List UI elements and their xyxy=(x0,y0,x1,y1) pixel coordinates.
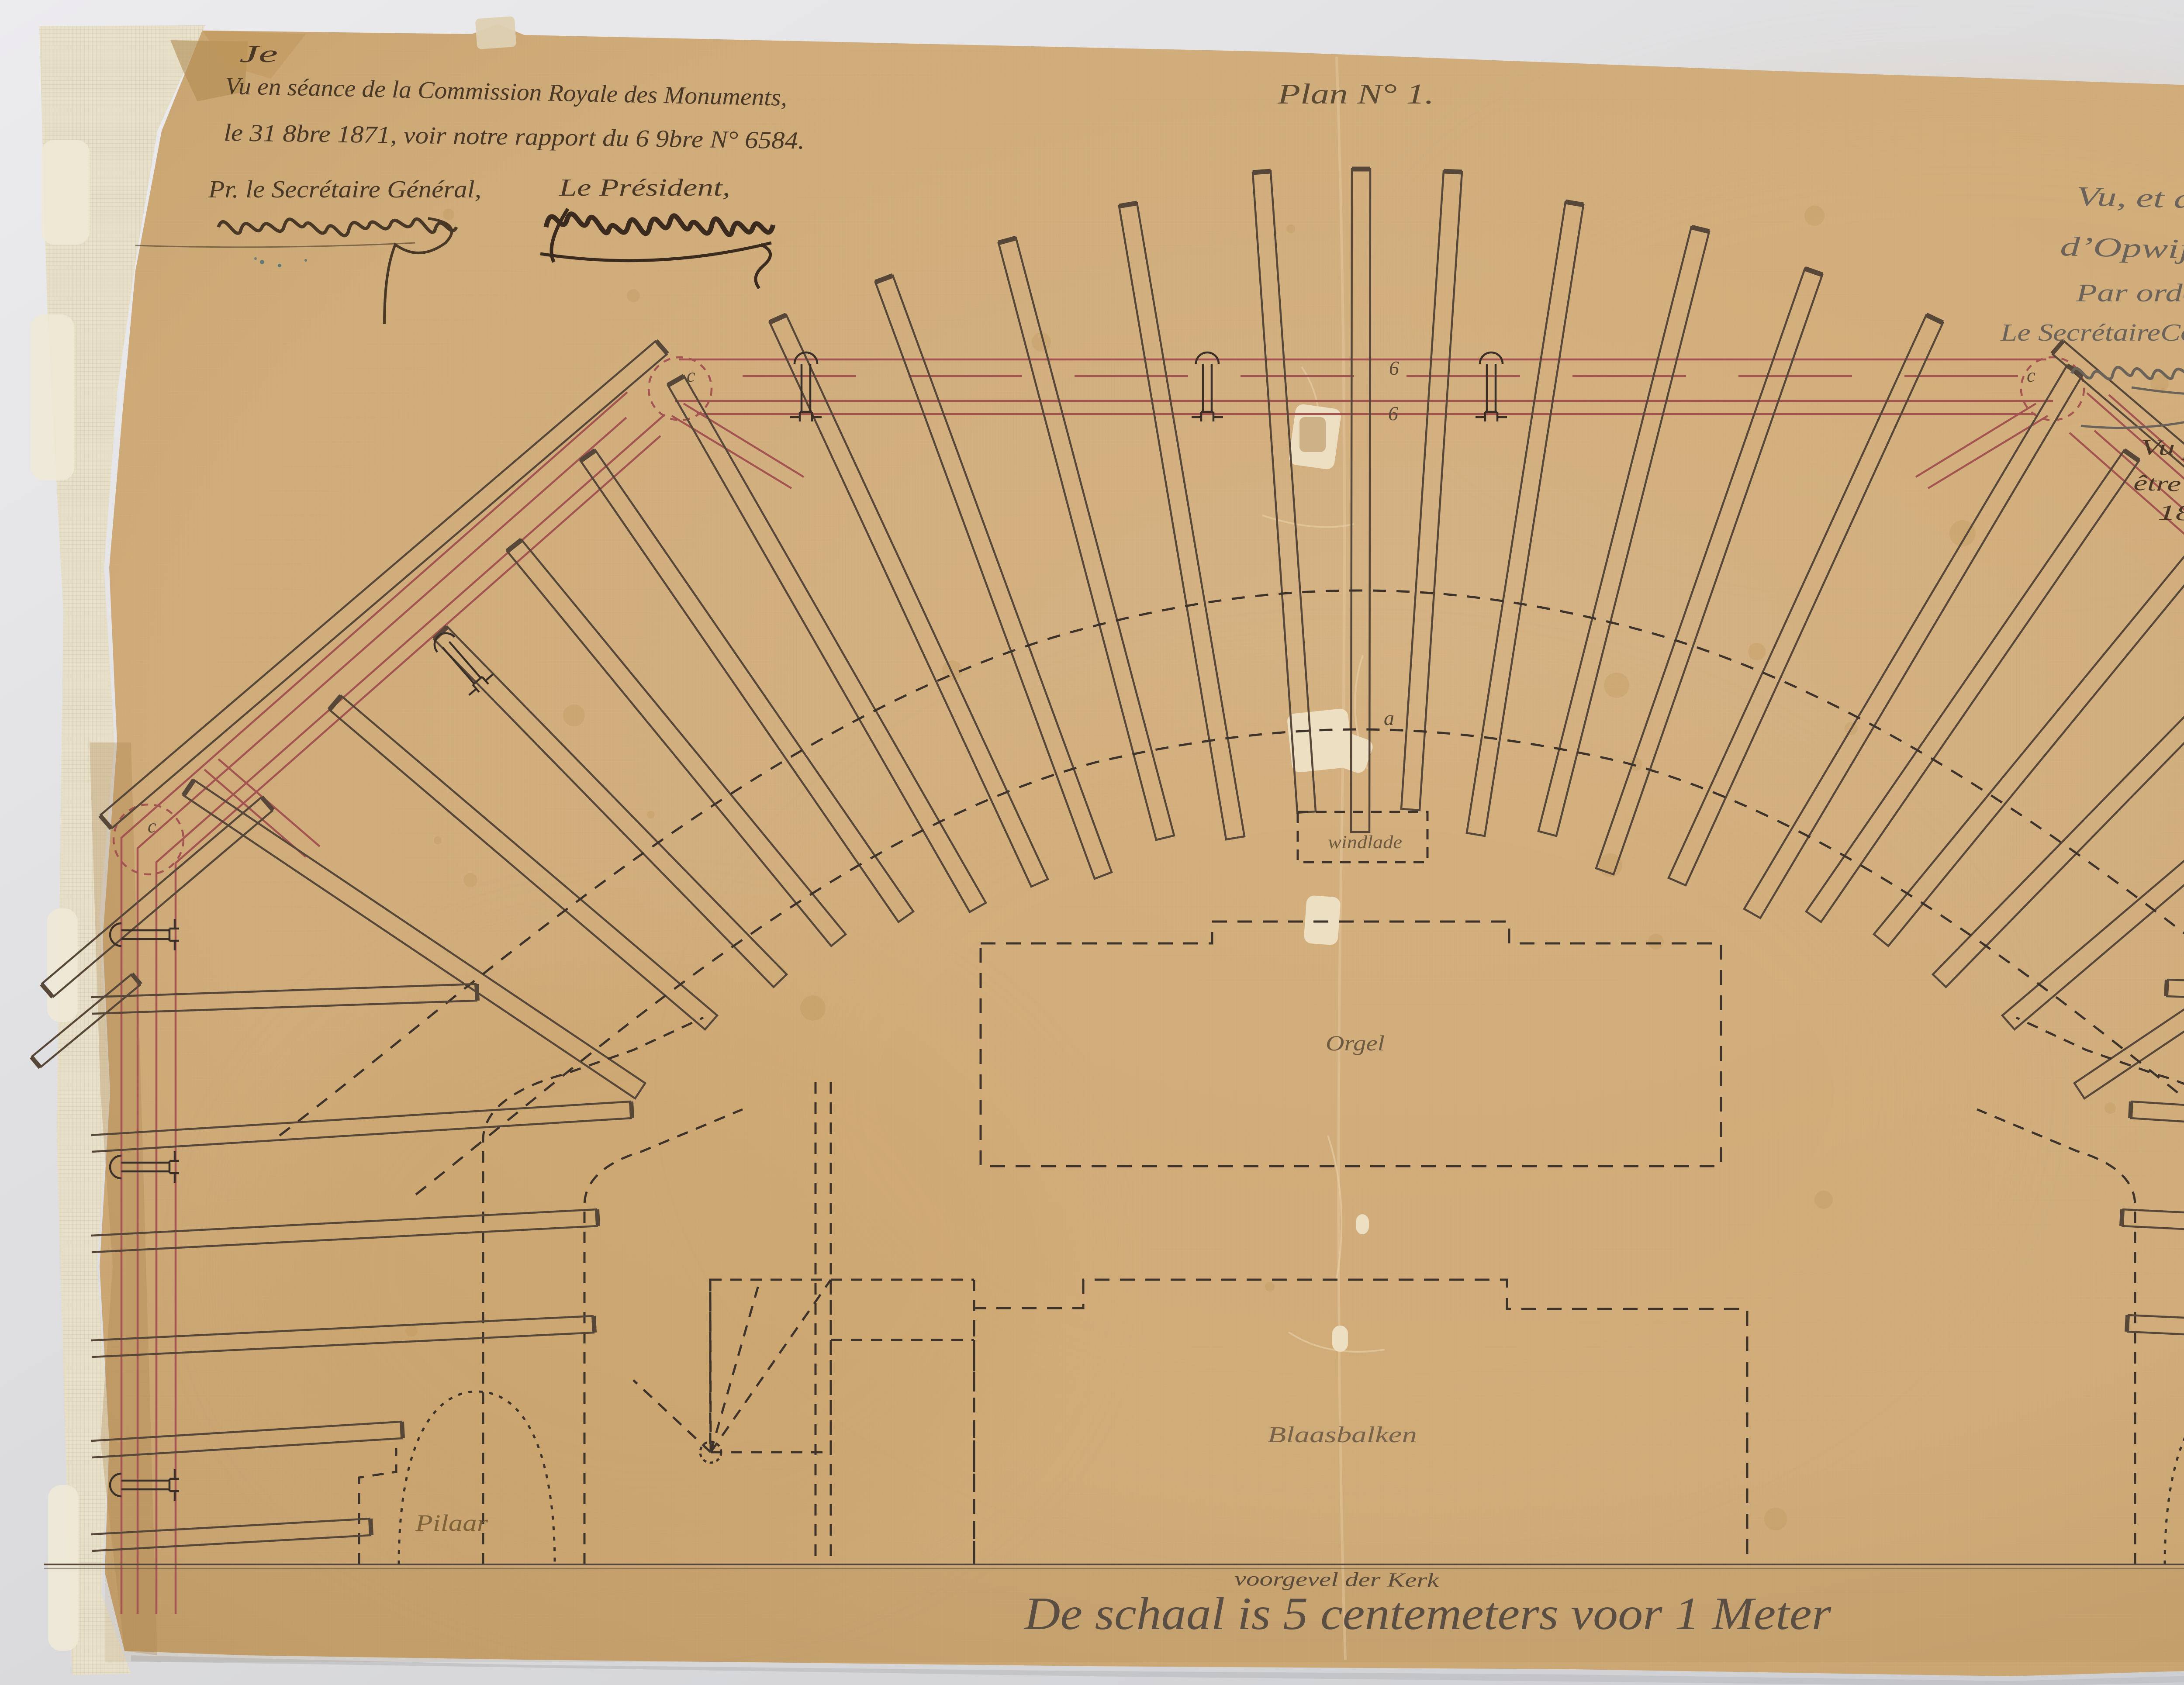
svg-text:1877, N° 5190.--: 1877, N° 5190.-- xyxy=(2158,500,2184,529)
svg-text:c: c xyxy=(687,365,695,386)
svg-text:Orgel: Orgel xyxy=(1326,1031,1385,1055)
svg-text:Blaasbalken: Blaasbalken xyxy=(1268,1423,1417,1447)
svg-text:Je: Je xyxy=(239,41,278,68)
svg-text:windlade: windlade xyxy=(1328,832,1402,853)
svg-text:De schaal is 5 centemeters voo: De schaal is 5 centemeters voor 1 Meter xyxy=(1023,1588,1832,1639)
svg-text:c: c xyxy=(2027,365,2035,386)
svg-text:6: 6 xyxy=(1388,402,1398,425)
svg-text:Le Président,: Le Président, xyxy=(559,174,730,201)
svg-text:Par ordonnance:: Par ordonnance: xyxy=(2076,279,2184,307)
svg-text:Plan N° 1.: Plan N° 1. xyxy=(1277,78,1434,110)
svg-text:Pilaar: Pilaar xyxy=(415,1510,488,1536)
svg-text:a: a xyxy=(1384,707,1394,730)
svg-text:6: 6 xyxy=(1389,357,1399,379)
svg-text:c: c xyxy=(148,815,156,837)
svg-text:Pr. le Secrétaire Général,: Pr. le Secrétaire Général, xyxy=(208,176,481,203)
svg-text:Le SecrétaireCommunal: Le SecrétaireCommunal xyxy=(2000,319,2184,346)
